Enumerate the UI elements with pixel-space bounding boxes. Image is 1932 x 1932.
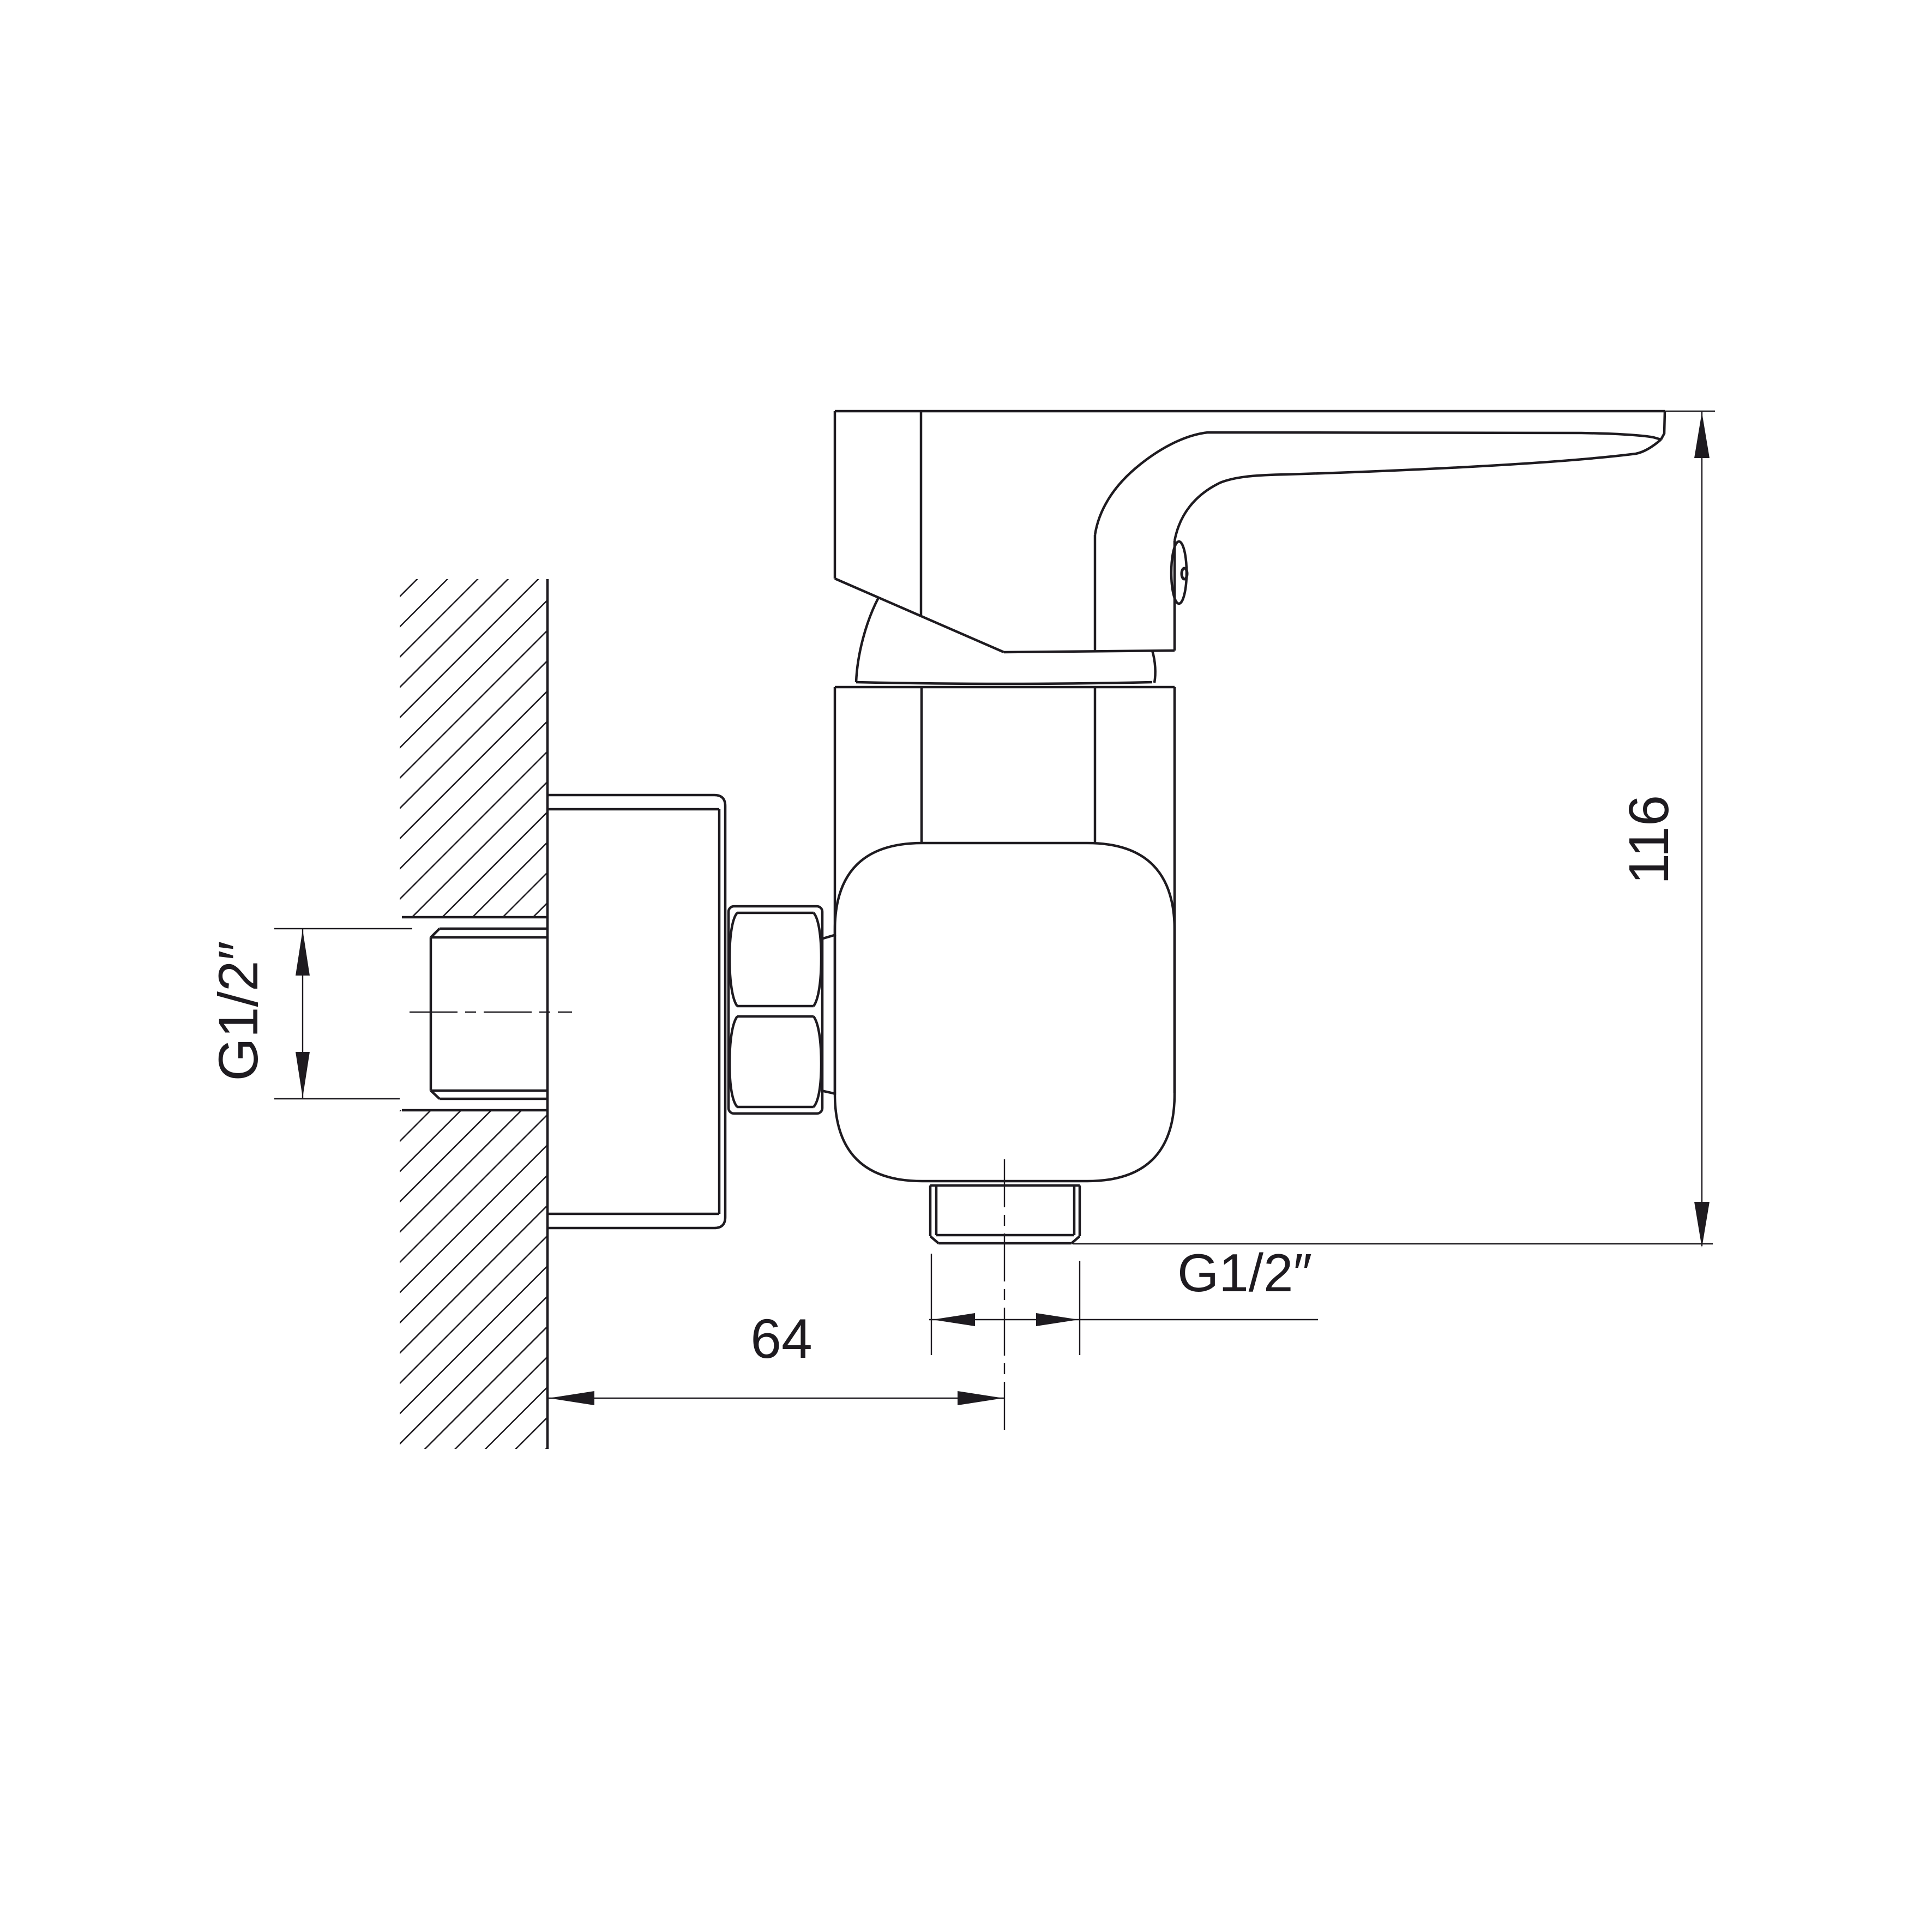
- svg-text:64: 64: [750, 1308, 812, 1370]
- svg-text:G1/2″: G1/2″: [1177, 1243, 1312, 1303]
- svg-text:G1/2″: G1/2″: [207, 941, 269, 1081]
- svg-text:116: 116: [1617, 795, 1680, 884]
